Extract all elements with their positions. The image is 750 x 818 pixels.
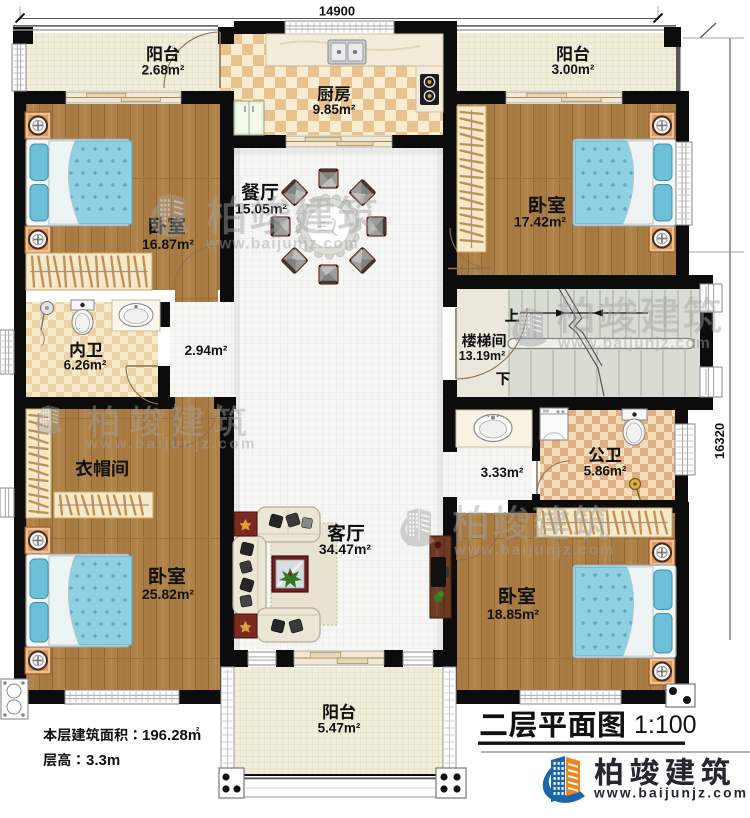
svg-text:2.94m²: 2.94m²: [185, 343, 228, 358]
svg-text:25.82m²: 25.82m²: [142, 586, 194, 602]
svg-text:14900: 14900: [319, 4, 355, 19]
svg-text:13.19m²: 13.19m²: [459, 349, 506, 363]
svg-text:www.baijunjz.com: www.baijunjz.com: [205, 236, 359, 253]
svg-text:3.00m²: 3.00m²: [552, 62, 595, 77]
svg-text:www.baijunjz.com: www.baijunjz.com: [593, 786, 748, 801]
svg-text:16320: 16320: [712, 423, 727, 459]
svg-text:16.87m²: 16.87m²: [142, 236, 194, 252]
svg-text:9.85m²: 9.85m²: [313, 102, 356, 117]
svg-text:www.baijunjz.com: www.baijunjz.com: [557, 335, 711, 352]
svg-text:196.28m: 196.28m: [142, 727, 201, 744]
svg-text:1:100: 1:100: [634, 711, 697, 739]
svg-text:17.42m²: 17.42m²: [514, 214, 566, 230]
svg-text:www.baijunjz.com: www.baijunjz.com: [453, 542, 615, 559]
svg-text:5.47m²: 5.47m²: [318, 721, 361, 736]
svg-text:6.26m²: 6.26m²: [64, 358, 107, 373]
svg-text:3.33m²: 3.33m²: [481, 465, 524, 480]
svg-text:5.86m²: 5.86m²: [584, 464, 627, 479]
svg-text:3.3m: 3.3m: [86, 752, 120, 769]
svg-text:www.baijunjz.com: www.baijunjz.com: [85, 436, 257, 453]
svg-text:34.47m²: 34.47m²: [319, 541, 371, 557]
svg-text:18.85m²: 18.85m²: [487, 606, 539, 622]
svg-text:2.68m²: 2.68m²: [142, 63, 185, 78]
